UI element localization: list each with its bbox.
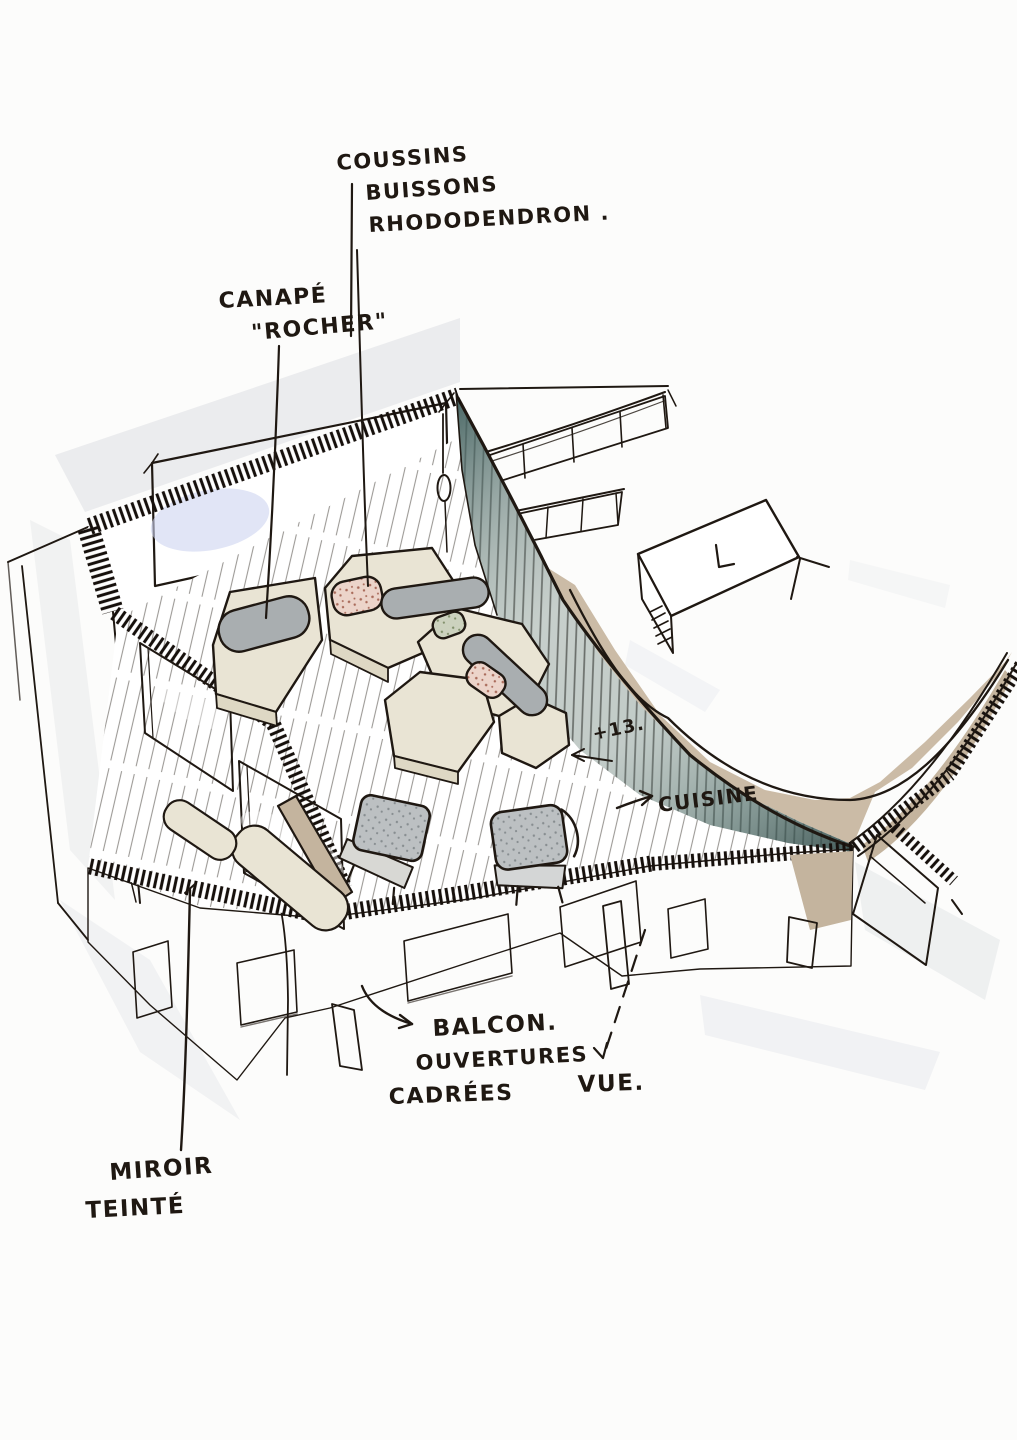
label-coussins-2: BUISSONS [365, 172, 499, 205]
window-glass [560, 881, 641, 967]
label-miroir-2: TEINTÉ [85, 1191, 186, 1224]
label-balcon-2: OUVERTURES [415, 1042, 589, 1075]
clerestory-row-upper [486, 390, 676, 483]
arrow-vue-dashed [603, 930, 645, 1058]
window-glass [668, 899, 708, 958]
interior-sketch-canvas: COUSSINS BUISSONS RHODODENDRON . CANAPÉ … [0, 0, 1017, 1440]
kitchen-island [638, 500, 829, 653]
label-balcon-1: BALCON. [432, 1009, 558, 1042]
label-vue: VUE. [577, 1070, 645, 1098]
balcony-openings [133, 881, 817, 1070]
label-balcon-3: CADRÉES [388, 1080, 514, 1110]
window-glass [404, 914, 512, 1001]
label-coussins-3: RHODODENDRON . [368, 200, 610, 237]
label-coussins-1: COUSSINS [336, 142, 469, 175]
label-canape-2: "ROCHER" [250, 309, 389, 346]
balcony-post [332, 1004, 362, 1070]
label-miroir-1: MIROIR [109, 1153, 215, 1186]
sketch-page: COUSSINS BUISSONS RHODODENDRON . CANAPÉ … [0, 0, 1017, 1440]
roof-edge-line [460, 386, 668, 389]
label-canape-1: CANAPÉ [218, 282, 328, 314]
